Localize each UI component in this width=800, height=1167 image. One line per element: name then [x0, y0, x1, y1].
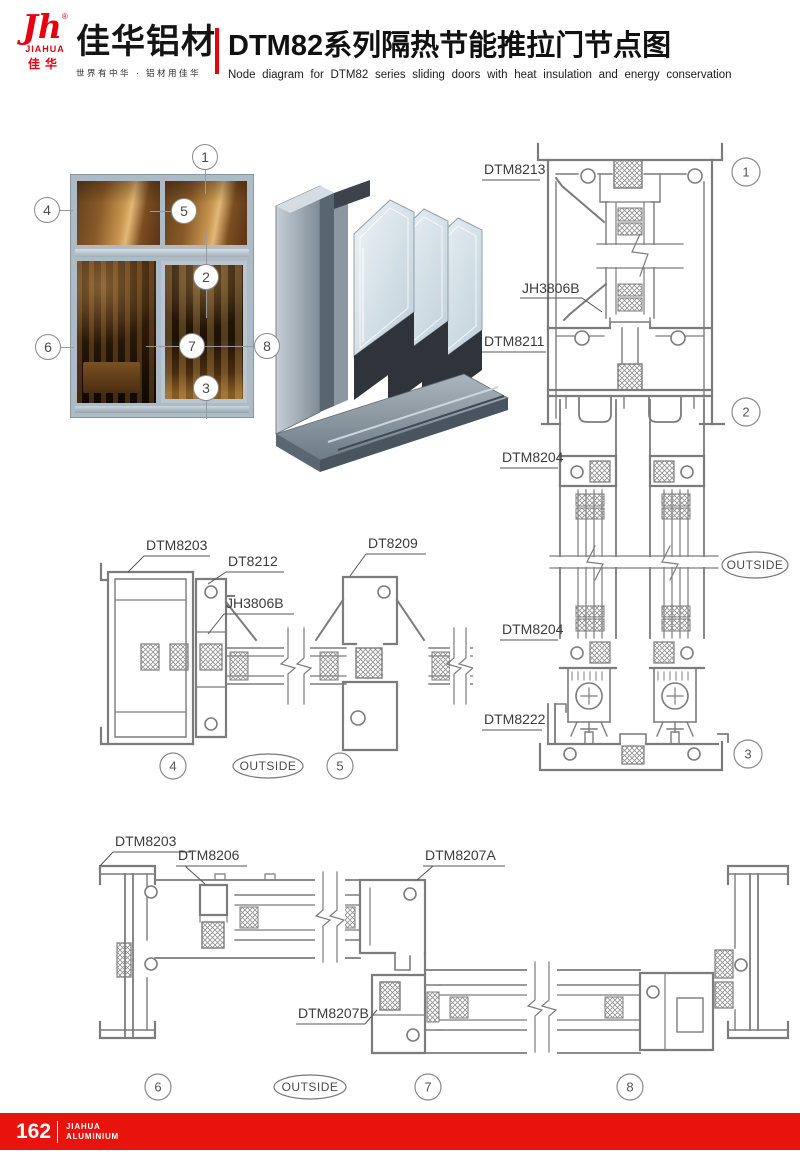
callout-number: 3 — [744, 747, 751, 762]
outside-label: OUTSIDE — [282, 1080, 339, 1094]
callout-number: 3 — [202, 380, 210, 396]
label-dtm8206: DTM8206 — [178, 847, 240, 863]
photo-sill — [75, 406, 249, 413]
callout-line-2b — [206, 290, 207, 318]
callout-number: 7 — [188, 338, 196, 354]
title-block: DTM82系列隔热节能推拉门节点图 Node diagram for DTM82… — [228, 22, 694, 81]
photo-fixed-panel — [77, 261, 156, 403]
title-divider — [215, 28, 219, 74]
bottom-section-drawing — [100, 866, 788, 1054]
callout-number: 2 — [202, 269, 210, 285]
label-jh3806b: JH3806B — [226, 595, 284, 611]
footer-divider — [57, 1121, 58, 1143]
label-dtm8207b: DTM8207B — [298, 1005, 369, 1021]
callout-line-7a — [146, 346, 179, 347]
brand-block: 佳华铝材 世界有中华 · 铝材用佳华 — [76, 14, 216, 79]
callout-number: 4 — [43, 202, 51, 218]
photo-callout-8: 8 — [254, 333, 280, 359]
label-dtm8207a: DTM8207A — [425, 847, 496, 863]
brand-tagline: 世界有中华 · 铝材用佳华 — [76, 67, 216, 79]
page-subtitle: Node diagram for DTM82 series sliding do… — [228, 69, 694, 81]
label-dtm8211: DTM8211 — [484, 333, 545, 349]
outside-label: OUTSIDE — [727, 558, 784, 572]
photo-callout-1: 1 — [192, 144, 218, 170]
callout-line-1 — [205, 170, 206, 194]
callout-line-3 — [206, 401, 207, 419]
callout-number: 6 — [154, 1080, 161, 1095]
photo-door-row — [77, 261, 247, 403]
callout-line-2a — [206, 232, 207, 264]
label-dt8212: DT8212 — [228, 553, 278, 569]
footer-brand: JIAHUA ALUMINIUM — [66, 1122, 119, 1142]
callout-number: 5 — [180, 203, 188, 219]
page-number: 162 — [16, 1120, 51, 1144]
callout-line-7b — [205, 346, 254, 347]
label-dtm8204-lower: DTM8204 — [502, 621, 564, 637]
logo-name-cn: 佳华 — [16, 55, 74, 72]
logo-monogram-icon: Jh — [22, 7, 62, 46]
photo-callout-2: 2 — [193, 264, 219, 290]
brand-name: 佳华铝材 — [76, 14, 216, 63]
footer-brand-line1: JIAHUA — [66, 1122, 119, 1132]
callout-number: 1 — [742, 165, 749, 180]
bottom-section-diagram: DTM8203 DTM8206 DTM8207A DTM8207B 6 OUTS… — [65, 830, 795, 1105]
vertical-section-drawing — [538, 144, 728, 770]
photo-callout-5: 5 — [171, 198, 197, 224]
logo-name-en: JIAHUA — [16, 44, 74, 54]
registered-mark: ® — [62, 12, 68, 21]
photo-transom-pane — [77, 181, 160, 245]
label-jh3806b: JH3806B — [522, 280, 580, 296]
vertical-section-diagram: DTM8213 JH3806B DTM8211 DTM8204 DTM8204 … — [482, 138, 800, 778]
callout-number: 4 — [169, 759, 176, 774]
photo-transom-row — [77, 181, 247, 245]
callout-number: 8 — [626, 1080, 633, 1095]
brand-logo: Jh® JIAHUA 佳华 — [16, 12, 74, 72]
label-dtm8203: DTM8203 — [146, 537, 208, 553]
outside-label: OUTSIDE — [240, 759, 297, 773]
footer-brand-line2: ALUMINIUM — [66, 1132, 119, 1142]
callout-number: 8 — [263, 338, 271, 354]
mid-section-diagram: DTM8203 DT8212 JH3806B DT8209 4 OUTSIDE … — [88, 532, 473, 787]
photo-frame-bar — [75, 249, 249, 257]
callout-number: 7 — [424, 1080, 431, 1095]
callout-number: 1 — [201, 149, 209, 165]
callout-number: 5 — [336, 759, 343, 774]
label-dtm8203: DTM8203 — [115, 833, 177, 849]
bottom-section-labels: DTM8203 DTM8206 DTM8207A DTM8207B 6 OUTS… — [100, 833, 643, 1100]
profile-3d-render — [268, 160, 513, 475]
label-dtm8213: DTM8213 — [484, 161, 546, 177]
callout-line-4 — [60, 210, 73, 211]
page-title: DTM82系列隔热节能推拉门节点图 — [228, 22, 694, 64]
callout-number: 2 — [742, 405, 749, 420]
label-dtm8222: DTM8222 — [484, 711, 546, 727]
photo-callout-3: 3 — [193, 375, 219, 401]
photo-callout-4: 4 — [34, 197, 60, 223]
page-footer: 162 JIAHUA ALUMINIUM — [0, 1113, 800, 1150]
photo-callout-7: 7 — [179, 333, 205, 359]
callout-number: 6 — [44, 339, 52, 355]
photo-callout-6: 6 — [35, 334, 61, 360]
catalog-page: { "header": { "logo_monogram": "Jh", "lo… — [0, 0, 800, 1167]
label-dtm8204-upper: DTM8204 — [502, 449, 564, 465]
label-dt8209: DT8209 — [368, 535, 418, 551]
callout-line-5 — [150, 211, 171, 212]
callout-line-6 — [61, 347, 74, 348]
mid-section-drawing — [101, 564, 473, 750]
